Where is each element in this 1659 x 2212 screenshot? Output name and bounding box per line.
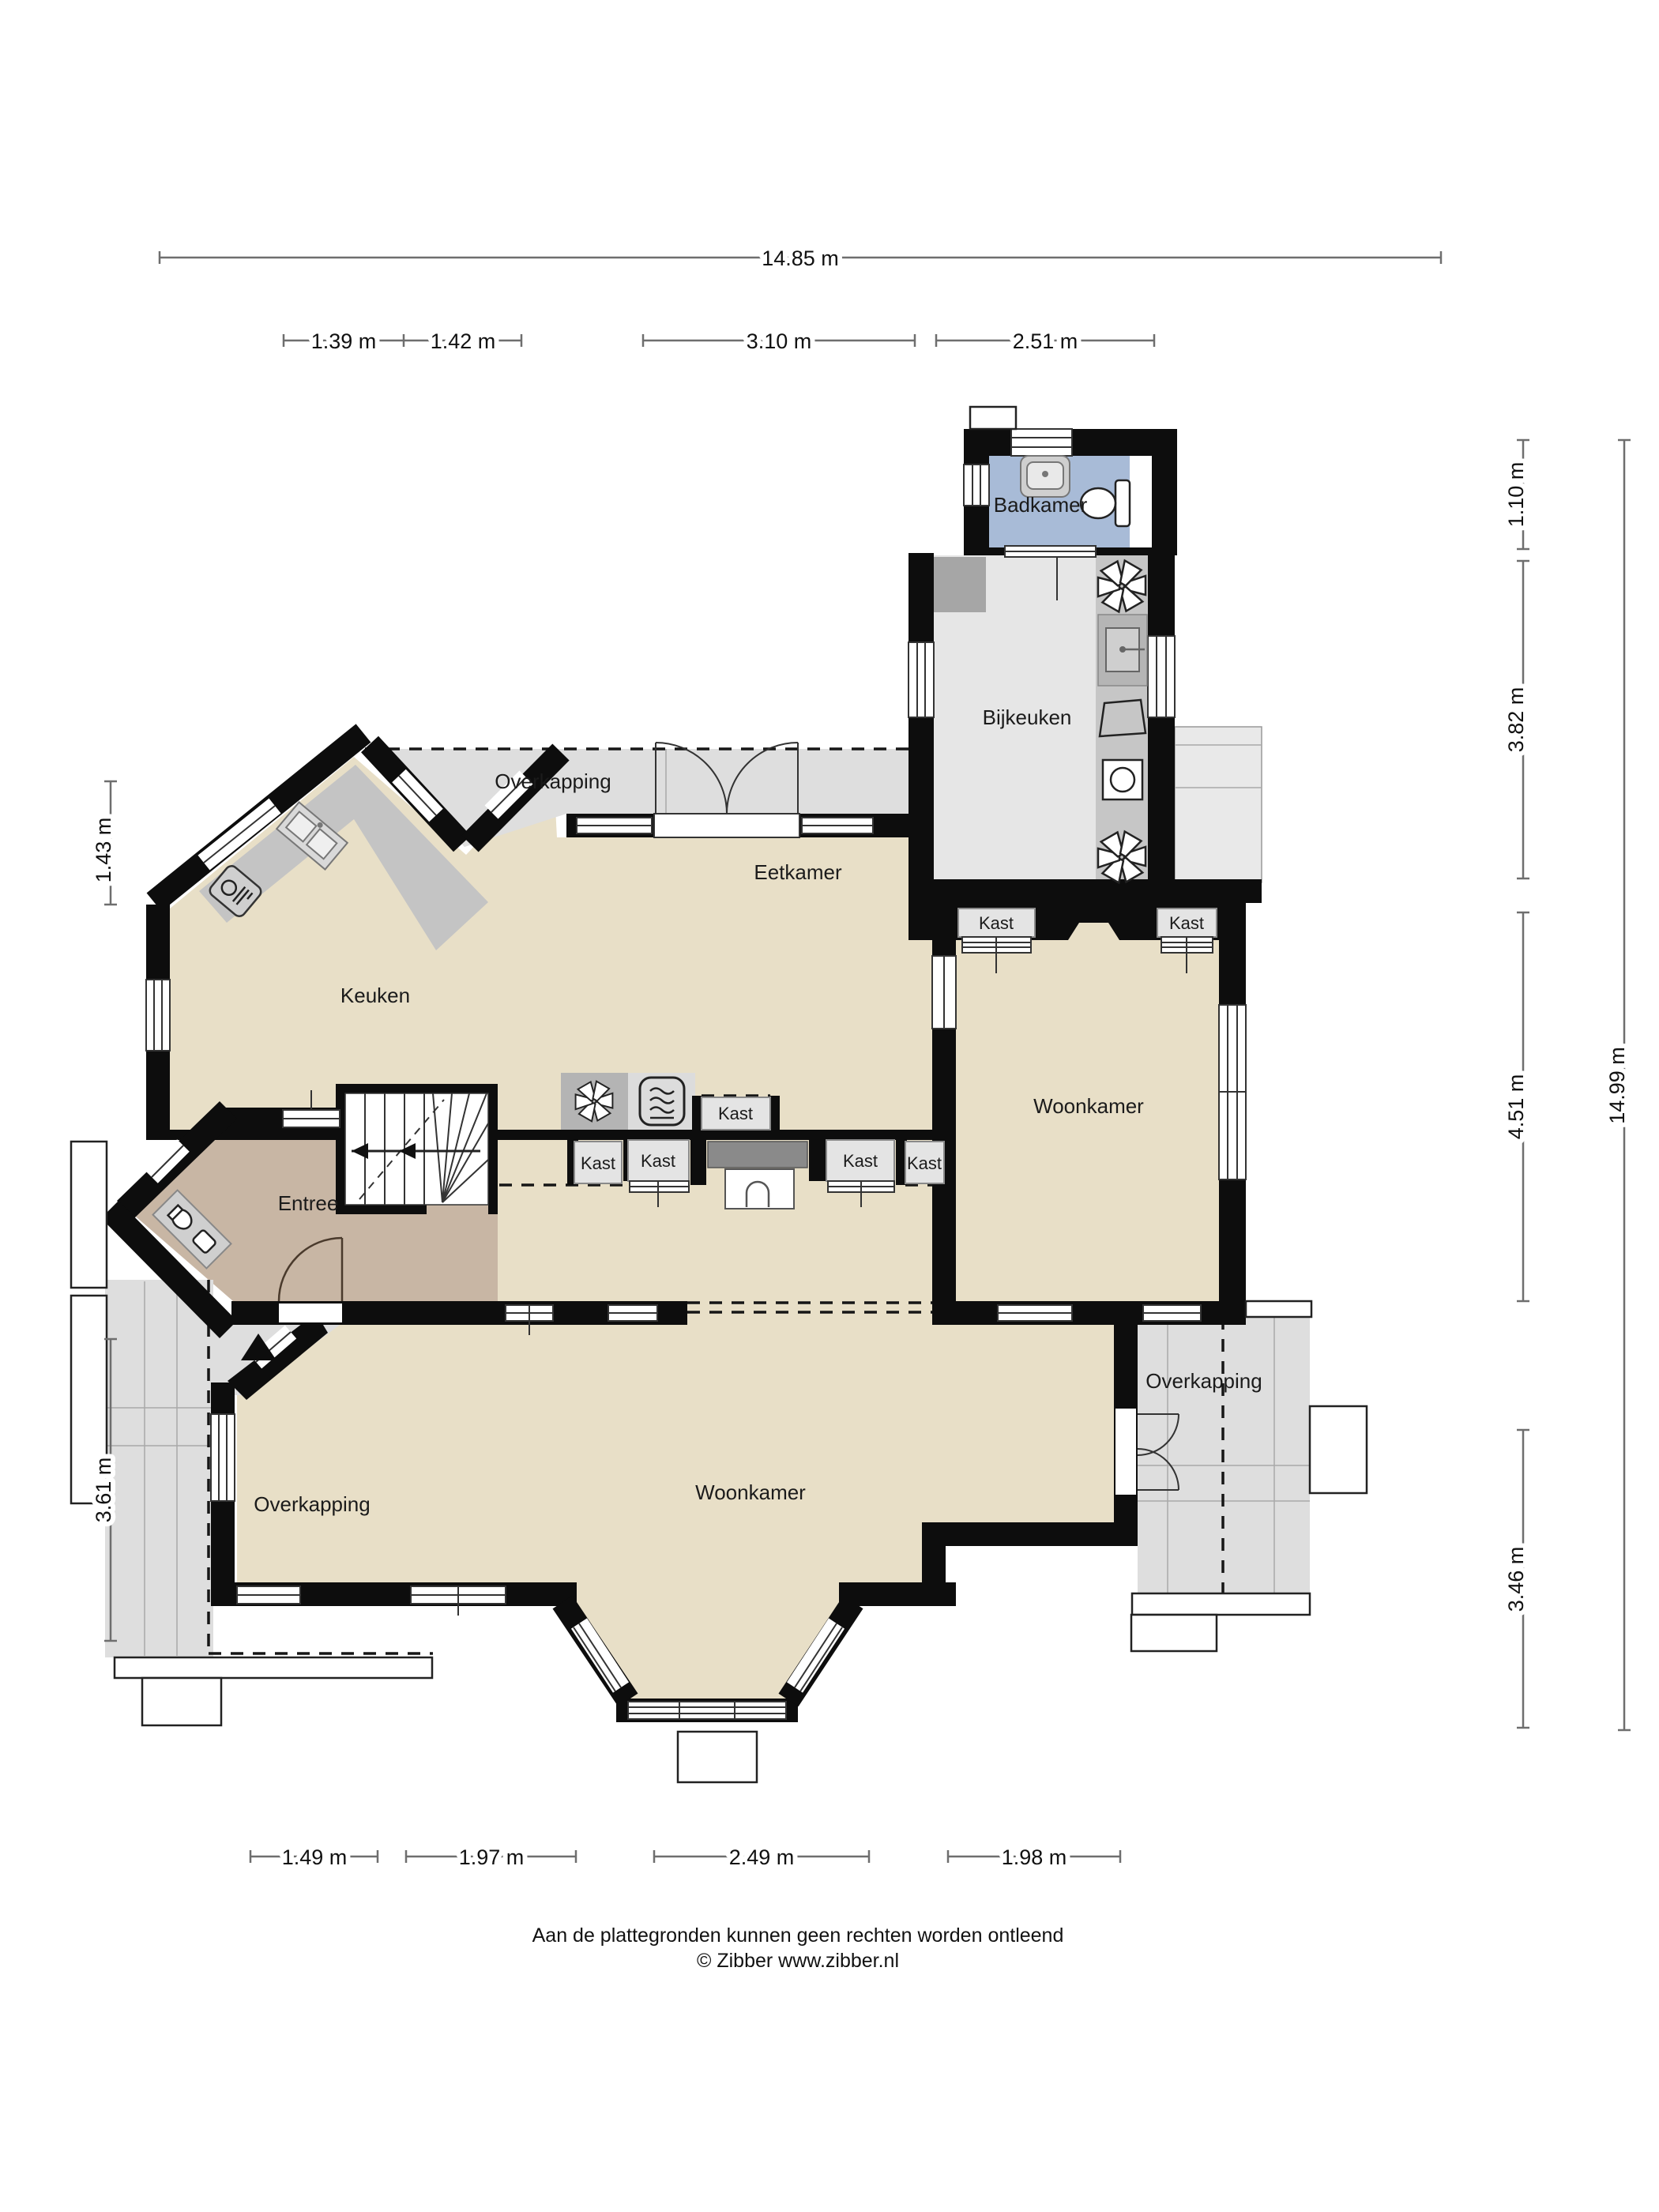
- window: [964, 465, 989, 506]
- room-label-overkapping-right: Overkapping: [1145, 1369, 1262, 1393]
- room-label-badkamer: Badkamer: [994, 493, 1088, 517]
- sink-icon: [1098, 615, 1147, 686]
- floorplan-canvas: Badkamer Bijkeuken Eetkamer Keuken Entre…: [0, 0, 1659, 2212]
- closet-label: Kast: [907, 1153, 942, 1173]
- dimension-top-total: 14.85 m: [160, 246, 1441, 270]
- terrace-right: [1175, 727, 1262, 882]
- window: [146, 980, 170, 1051]
- room-label-entree: Entree: [278, 1191, 339, 1215]
- svg-text:1.42 m: 1.42 m: [431, 329, 496, 353]
- svg-text:1.39 m: 1.39 m: [311, 329, 377, 353]
- window: [577, 818, 652, 833]
- svg-text:1.10 m: 1.10 m: [1504, 462, 1528, 528]
- floorplan-page: Badkamer Bijkeuken Eetkamer Keuken Entre…: [0, 0, 1659, 2212]
- room-floor-woonkamer-top: [956, 940, 1219, 1301]
- svg-text:3.46 m: 3.46 m: [1504, 1547, 1528, 1612]
- svg-text:3.82 m: 3.82 m: [1504, 687, 1528, 753]
- svg-text:1.97 m: 1.97 m: [459, 1845, 525, 1869]
- room-label-overkapping-left: Overkapping: [254, 1492, 370, 1516]
- room-label-overkapping-top: Overkapping: [495, 769, 611, 793]
- bijkeuken-corner-block: [934, 557, 986, 612]
- badkamer-niche: [1130, 456, 1152, 547]
- window: [1011, 429, 1072, 456]
- window: [1005, 546, 1096, 557]
- stairs-icon: [345, 1093, 488, 1205]
- footer: Aan de plattegronden kunnen geen rechten…: [532, 1924, 1064, 1972]
- dimension-right: 1.10 m 3.82 m 4.51 m 3.46 m: [1504, 440, 1529, 1728]
- window: [932, 956, 956, 1029]
- window: [237, 1586, 300, 1604]
- closet-label: Kast: [1169, 913, 1204, 933]
- svg-text:4.51 m: 4.51 m: [1504, 1074, 1528, 1140]
- window: [1219, 1005, 1246, 1179]
- counter-dark: [561, 1073, 628, 1130]
- svg-text:3.10 m: 3.10 m: [747, 329, 812, 353]
- closet-label: Kast: [641, 1151, 675, 1171]
- svg-text:1.43 m: 1.43 m: [92, 818, 115, 883]
- room-label-eetkamer: Eetkamer: [754, 860, 842, 884]
- window: [211, 1414, 235, 1501]
- svg-text:14.85 m: 14.85 m: [762, 246, 839, 270]
- room-floor-overkapping-left: [105, 1280, 213, 1657]
- svg-text:1.98 m: 1.98 m: [1002, 1845, 1067, 1869]
- svg-text:2.51 m: 2.51 m: [1013, 329, 1078, 353]
- dimension-right-total: 14.99 m: [1605, 440, 1631, 1730]
- svg-text:3.61 m: 3.61 m: [92, 1458, 115, 1523]
- dimension-bottom: 1.49 m 1.97 m 2.49 m 1.98 m: [250, 1845, 1120, 1869]
- svg-text:1.49 m: 1.49 m: [282, 1845, 348, 1869]
- window: [608, 1305, 657, 1321]
- window: [411, 1586, 506, 1616]
- window: [628, 1702, 786, 1719]
- washing-machine-icon: [1103, 760, 1142, 799]
- room-label-bijkeuken: Bijkeuken: [983, 705, 1072, 729]
- room-label-woonkamer-top: Woonkamer: [1033, 1094, 1144, 1118]
- dimension-row2: 1.39 m 1.42 m 3.10 m 2.51 m: [284, 329, 1154, 353]
- footer-copyright: © Zibber www.zibber.nl: [697, 1950, 899, 1972]
- closet-label: Kast: [843, 1151, 878, 1171]
- footer-disclaimer: Aan de plattegronden kunnen geen rechten…: [532, 1924, 1064, 1947]
- window: [1148, 636, 1175, 717]
- window: [998, 1305, 1072, 1321]
- svg-text:2.49 m: 2.49 m: [729, 1845, 795, 1869]
- closet-label: Kast: [718, 1104, 753, 1123]
- room-label-keuken: Keuken: [340, 984, 410, 1007]
- sink-icon: [1021, 456, 1070, 497]
- window: [908, 642, 934, 717]
- room-label-woonkamer-bottom: Woonkamer: [695, 1480, 806, 1504]
- window: [802, 818, 873, 833]
- window: [1143, 1305, 1201, 1321]
- svg-text:14.99 m: 14.99 m: [1605, 1047, 1629, 1124]
- closet-label: Kast: [581, 1153, 615, 1173]
- closet-label: Kast: [979, 913, 1014, 933]
